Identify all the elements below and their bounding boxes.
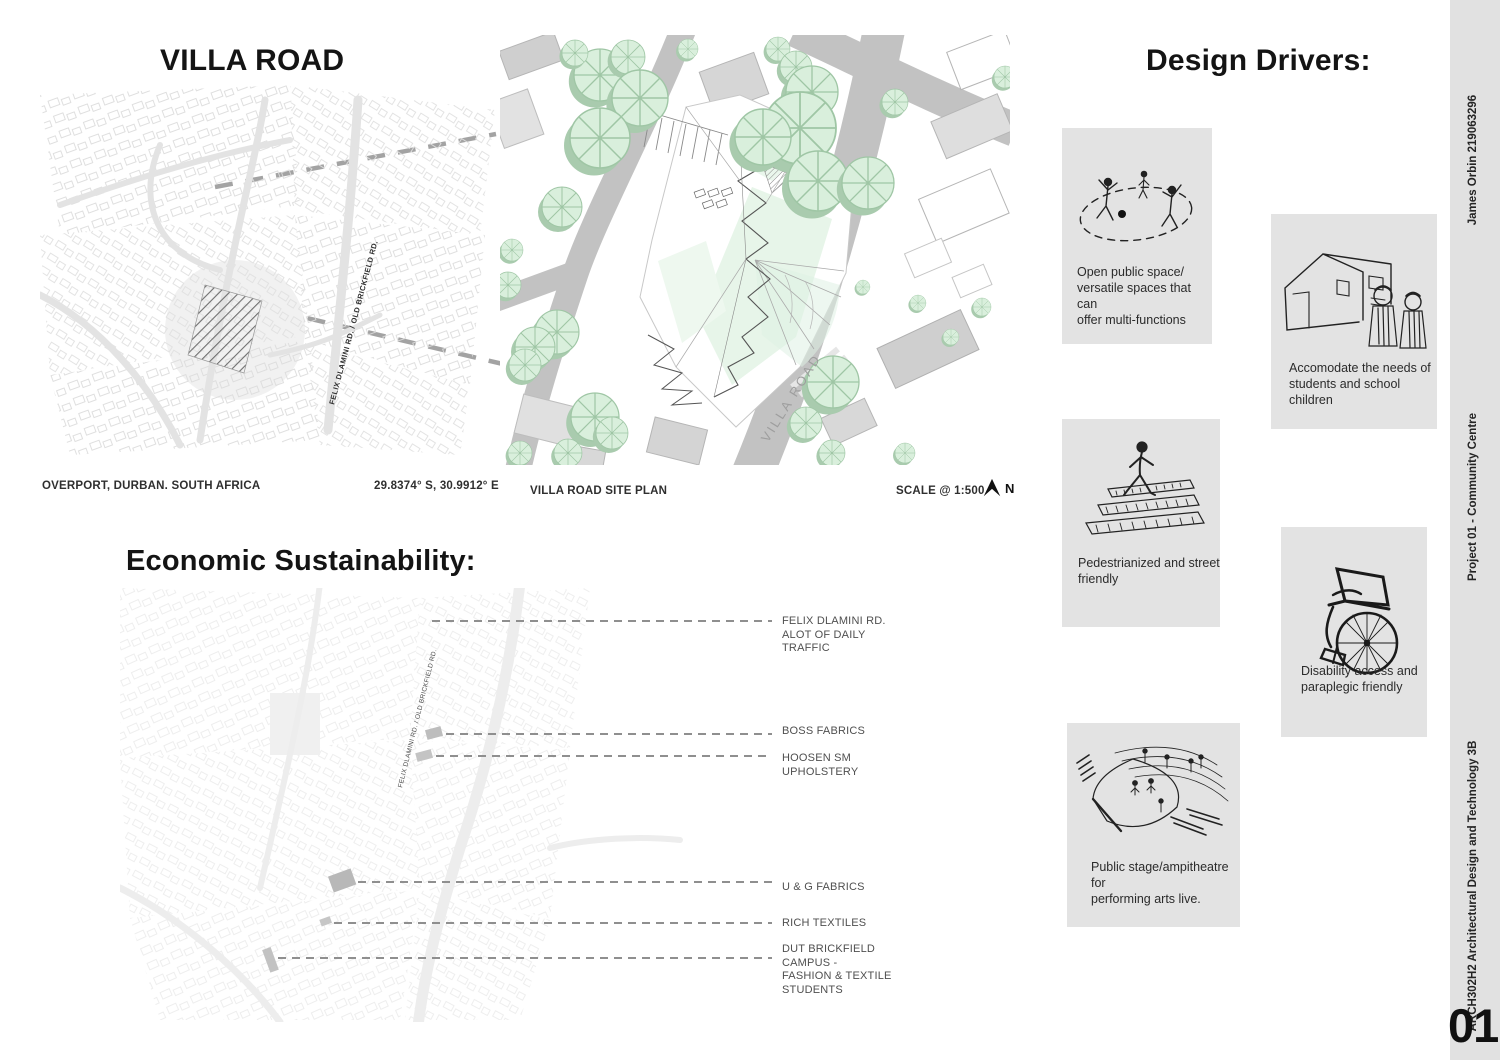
coordinates-label: 29.8374° S, 30.9912° E [374,480,499,492]
label-hoosen-upholstery: HOOSEN SM UPHOLSTERY [782,752,952,779]
label-boss-fabrics: BOSS FABRICS [782,725,952,739]
driver-card-stage: Public stage/ampitheatre for performing … [1067,723,1240,927]
economic-blocks [120,588,590,1020]
label-dut-campus: DUT BRICKFIELD CAMPUS - FASHION & TEXTIL… [782,943,952,997]
economic-title: Economic Sustainability: [126,545,476,578]
sidebar-project-title: Project 01 - Community Centre [1467,413,1479,581]
driver-card-students: Accomodate the needs of students and sch… [1271,214,1437,429]
context-blocks [40,85,495,455]
site-plan-caption: VILLA ROAD SITE PLAN [530,485,667,497]
driver-caption: Disability access and paraplegic friendl… [1301,663,1418,695]
economic-map: FELIX DLAMINI RD. / OLD BRICKFIELD RD. [120,588,775,1022]
page-number: 01 [1448,1002,1498,1049]
driver-card-disability: Disability access and paraplegic friendl… [1281,527,1427,737]
driver-caption: Public stage/ampitheatre for performing … [1091,859,1240,907]
north-arrow: N [981,477,1014,499]
driver-card-pedestrian: Pedestrianized and street friendly [1062,419,1220,627]
sidebar-student-name: James Orbin 219063296 [1467,95,1479,225]
site-plan-drawing: VILLA ROAD [500,35,1010,465]
sidebar-course-title: ARCH302H2 Architectural Design and Techn… [1467,741,1479,1032]
people-playing-icon [1070,156,1204,260]
north-label: N [1005,481,1014,496]
presentation-board: VILLA ROAD [0,0,1500,1060]
context-map: FELIX DLAMINI RD. / OLD BRICKFIELD RD. [40,85,495,460]
design-drivers-title: Design Drivers: [1146,44,1371,78]
school-children-icon [1279,238,1429,350]
pedestrian-crossing-icon [1072,435,1210,553]
location-label: OVERPORT, DURBAN. SOUTH AFRICA [42,480,260,492]
scale-label: SCALE @ 1:500 [896,485,985,497]
driver-caption: Open public space/ versatile spaces that… [1077,264,1212,328]
label-ug-fabrics: U & G FABRICS [782,881,952,895]
north-arrow-icon [981,477,1003,499]
driver-card-open-public-space: Open public space/ versatile spaces that… [1062,128,1212,344]
label-rich-textiles: RICH TEXTILES [782,917,952,931]
amphitheatre-icon [1075,737,1233,855]
driver-caption: Pedestrianized and street friendly [1078,555,1220,587]
villa-road-title: VILLA ROAD [160,44,344,78]
label-felix-dlamini: FELIX DLAMINI RD. ALOT OF DAILY TRAFFIC [782,615,952,656]
driver-caption: Accomodate the needs of students and sch… [1289,360,1437,408]
